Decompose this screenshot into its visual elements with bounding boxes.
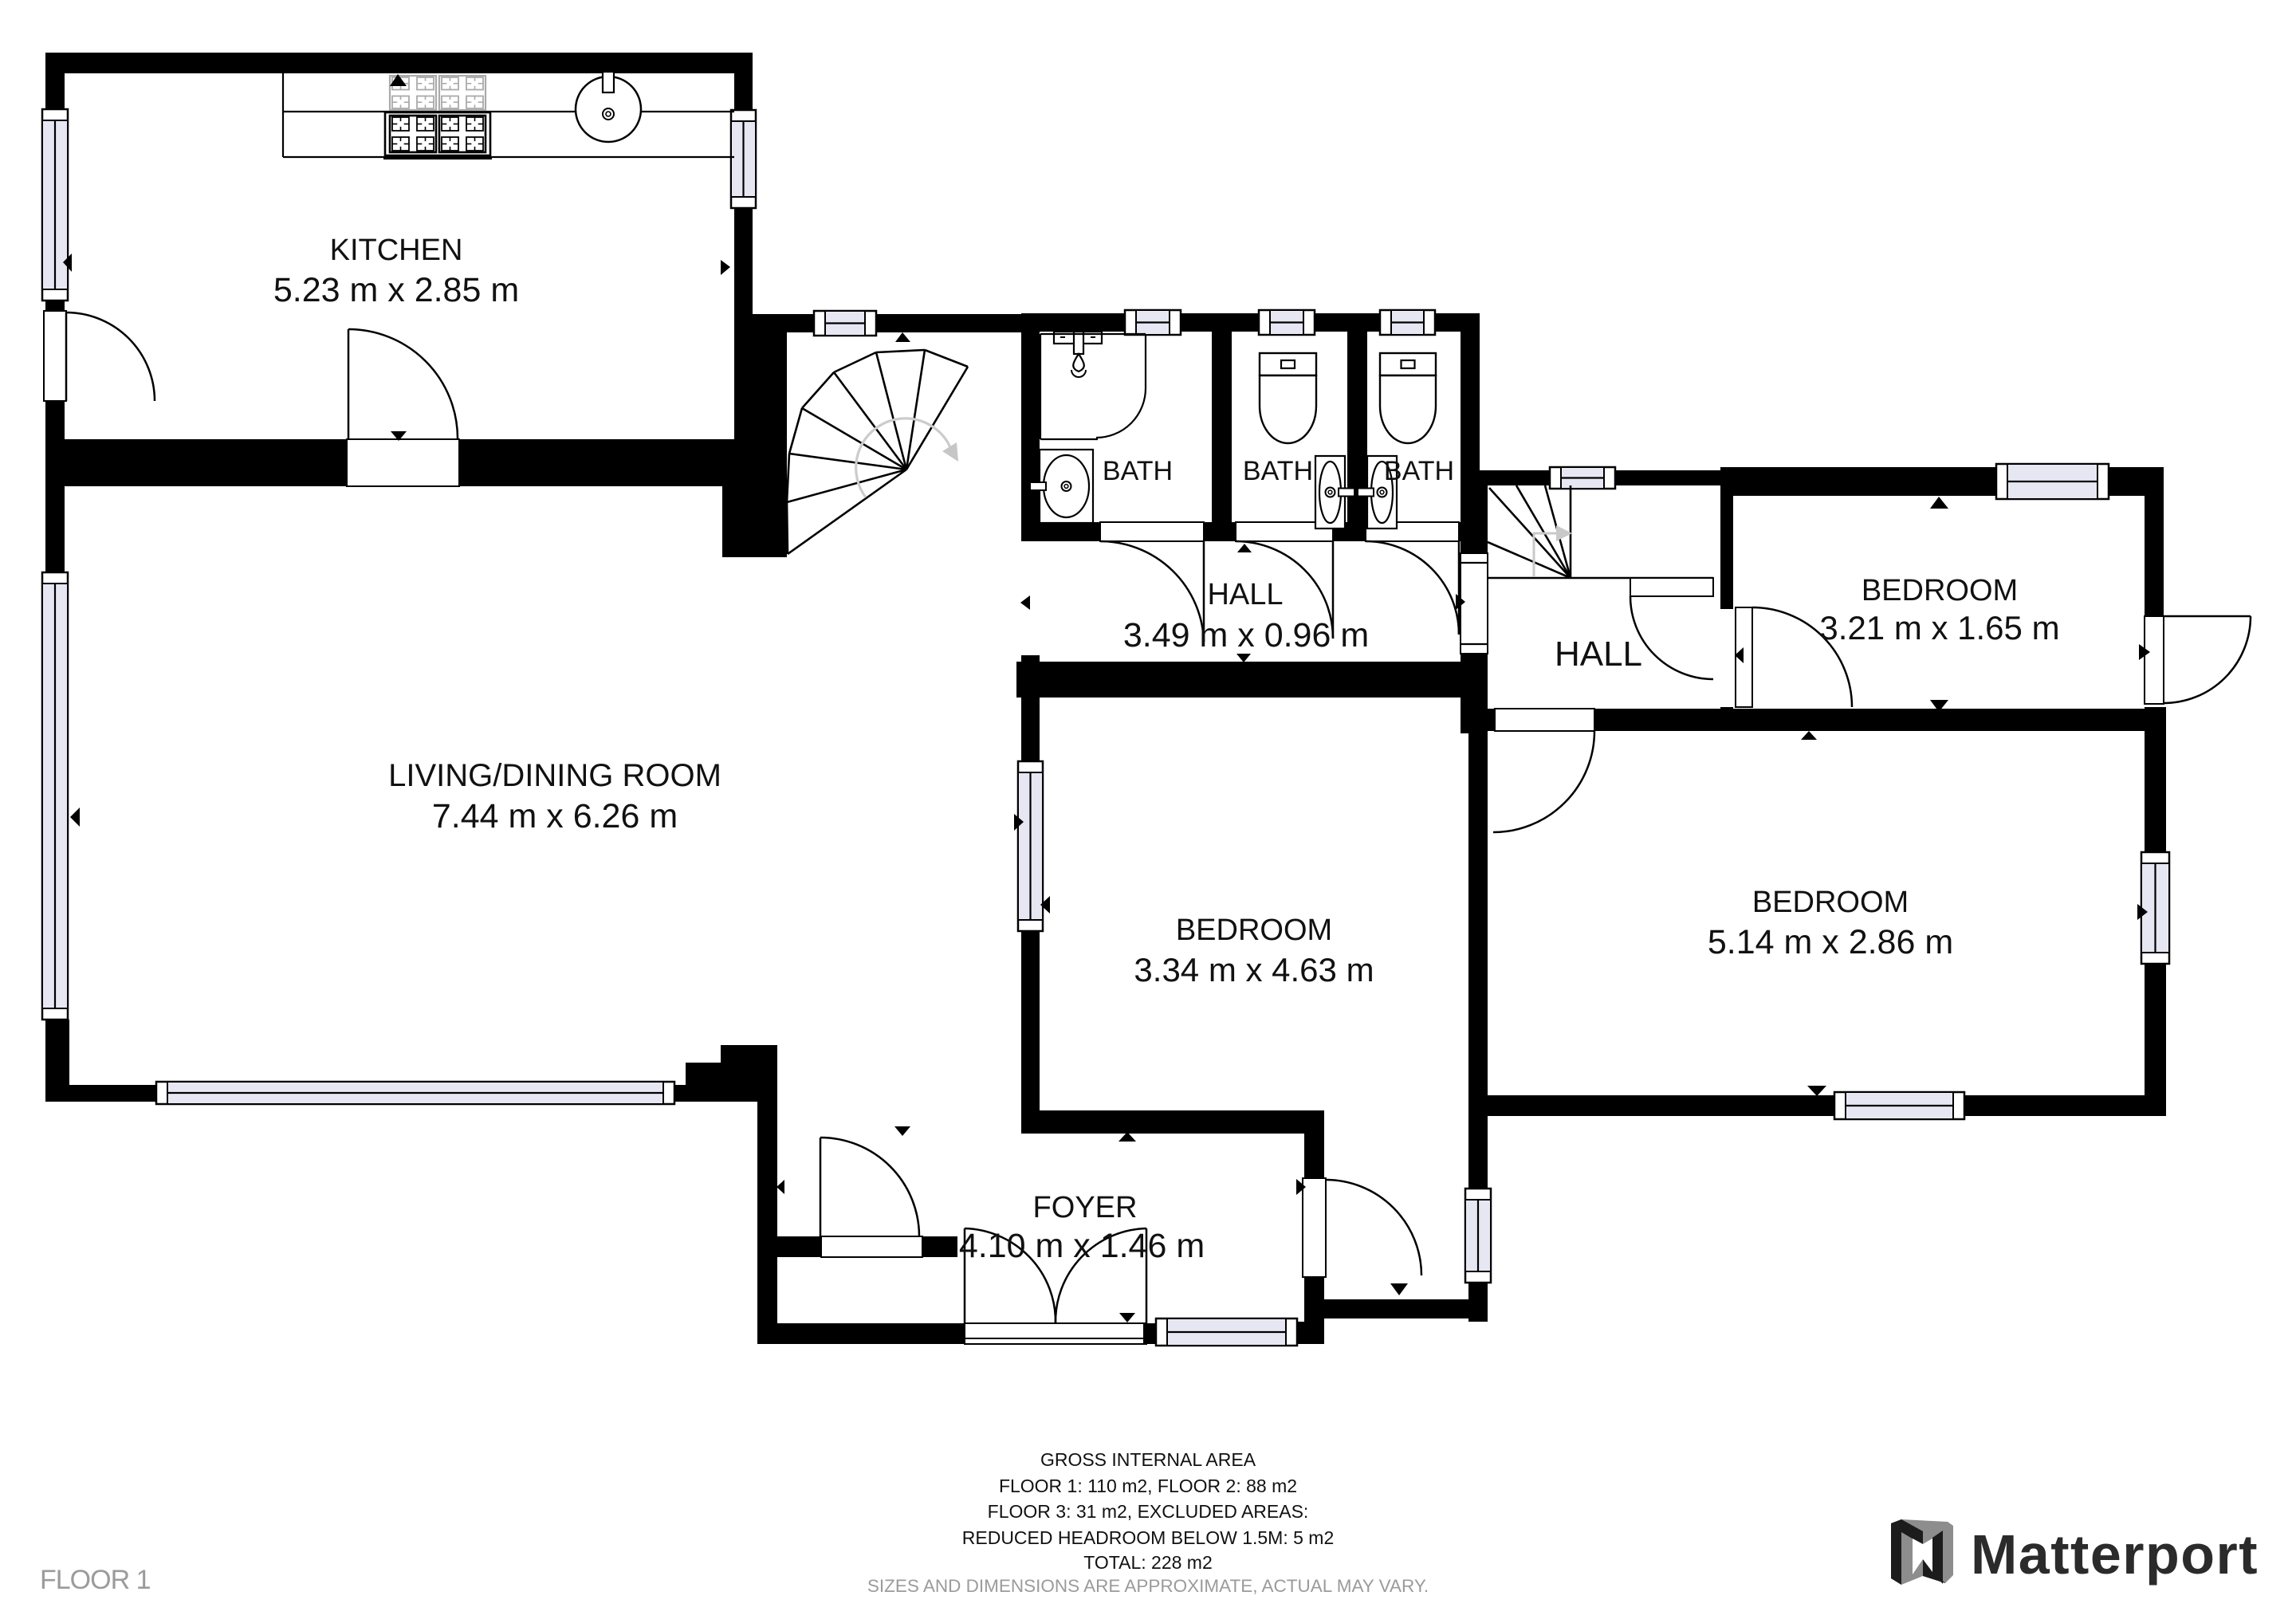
svg-text:3.21 m x 1.65 m: 3.21 m x 1.65 m	[1819, 609, 2059, 646]
svg-text:4.10 m x 1.46 m: 4.10 m x 1.46 m	[959, 1227, 1205, 1265]
svg-text:3.34 m x 4.63 m: 3.34 m x 4.63 m	[1134, 951, 1374, 988]
svg-text:FOYER: FOYER	[1033, 1191, 1138, 1224]
svg-text:FLOOR 1: 110 m2, FLOOR 2: 88 m: FLOOR 1: 110 m2, FLOOR 2: 88 m2	[999, 1476, 1297, 1496]
svg-text:TOTAL: 228 m2: TOTAL: 228 m2	[1083, 1552, 1213, 1573]
svg-text:BEDROOM: BEDROOM	[1176, 914, 1332, 947]
svg-text:3.49 m x 0.96 m: 3.49 m x 0.96 m	[1123, 616, 1369, 654]
svg-text:REDUCED HEADROOM BELOW 1.5M: 5: REDUCED HEADROOM BELOW 1.5M: 5 m2	[962, 1527, 1334, 1548]
svg-text:GROSS INTERNAL AREA: GROSS INTERNAL AREA	[1040, 1449, 1256, 1470]
svg-text:FLOOR 1: FLOOR 1	[40, 1565, 151, 1595]
svg-text:BATH: BATH	[1243, 456, 1313, 486]
svg-text:LIVING/DINING ROOM: LIVING/DINING ROOM	[388, 758, 721, 793]
svg-text:HALL: HALL	[1555, 635, 1642, 674]
svg-text:FLOOR 3: 31 m2, EXCLUDED AREAS: FLOOR 3: 31 m2, EXCLUDED AREAS:	[988, 1501, 1309, 1522]
svg-text:7.44 m x 6.26 m: 7.44 m x 6.26 m	[432, 797, 678, 835]
svg-text:Matterport: Matterport	[1971, 1523, 2259, 1586]
svg-text:5.23 m x 2.85 m: 5.23 m x 2.85 m	[273, 271, 519, 309]
svg-text:SIZES AND DIMENSIONS ARE APPRO: SIZES AND DIMENSIONS ARE APPROXIMATE, AC…	[867, 1576, 1429, 1596]
svg-text:BEDROOM: BEDROOM	[1862, 574, 2018, 607]
svg-text:HALL: HALL	[1207, 578, 1283, 611]
svg-text:BATH: BATH	[1384, 456, 1454, 486]
svg-text:KITCHEN: KITCHEN	[330, 234, 463, 267]
svg-text:BATH: BATH	[1103, 456, 1173, 486]
svg-text:BEDROOM: BEDROOM	[1752, 886, 1909, 919]
svg-text:5.14 m x 2.86 m: 5.14 m x 2.86 m	[1708, 923, 1953, 961]
